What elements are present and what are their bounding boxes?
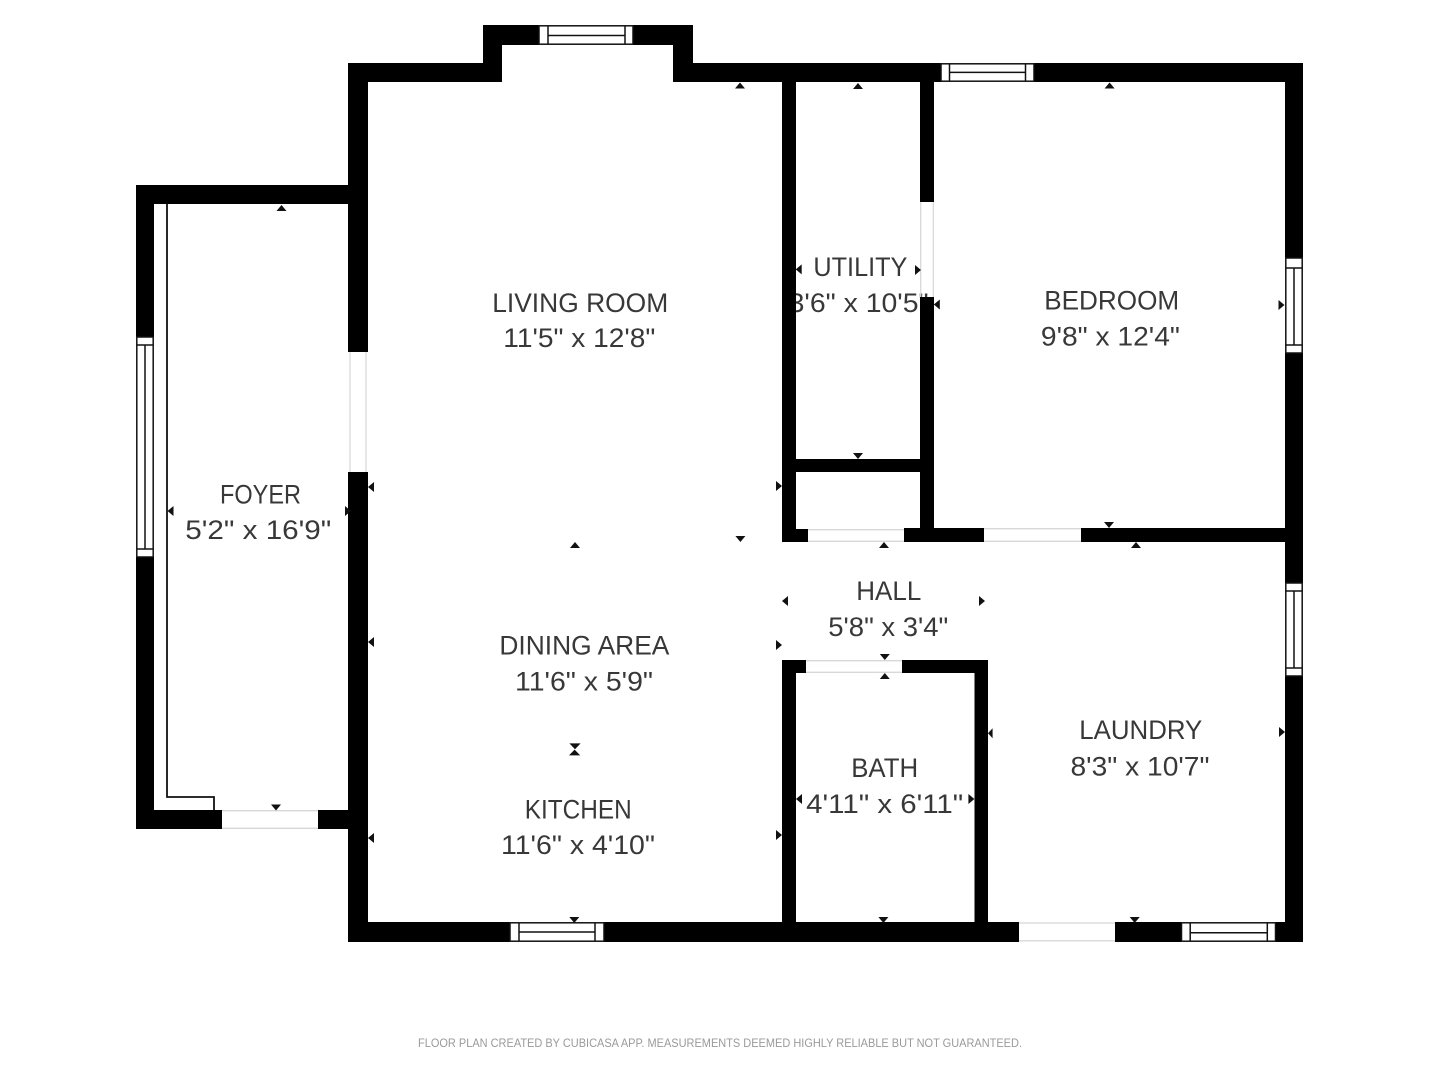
svg-text:LAUNDRY: LAUNDRY [1079,715,1202,745]
svg-text:FOYER: FOYER [220,480,301,510]
svg-text:HALL: HALL [856,576,921,606]
svg-text:11'6" x 5'9": 11'6" x 5'9" [515,667,653,697]
svg-text:4'11" x 6'11": 4'11" x 6'11" [806,789,963,819]
svg-text:DINING AREA: DINING AREA [499,631,669,661]
svg-text:5'2" x 16'9": 5'2" x 16'9" [185,515,331,545]
svg-text:11'5" x 12'8": 11'5" x 12'8" [503,323,655,353]
svg-text:KITCHEN: KITCHEN [525,795,632,825]
svg-text:8'3" x 10'7": 8'3" x 10'7" [1071,752,1210,782]
svg-text:BATH: BATH [851,753,918,783]
svg-text:11'6" x 4'10": 11'6" x 4'10" [501,830,655,860]
svg-text:FLOOR PLAN CREATED BY CUBICASA: FLOOR PLAN CREATED BY CUBICASA APP. MEAS… [418,1036,1022,1050]
svg-text:5'8" x 3'4": 5'8" x 3'4" [828,612,948,642]
svg-text:BEDROOM: BEDROOM [1044,286,1179,316]
svg-text:UTILITY: UTILITY [813,252,907,282]
svg-text:3'6" x 10'5": 3'6" x 10'5" [789,288,929,318]
svg-text:LIVING ROOM: LIVING ROOM [492,288,668,318]
svg-text:9'8" x 12'4": 9'8" x 12'4" [1041,322,1180,352]
